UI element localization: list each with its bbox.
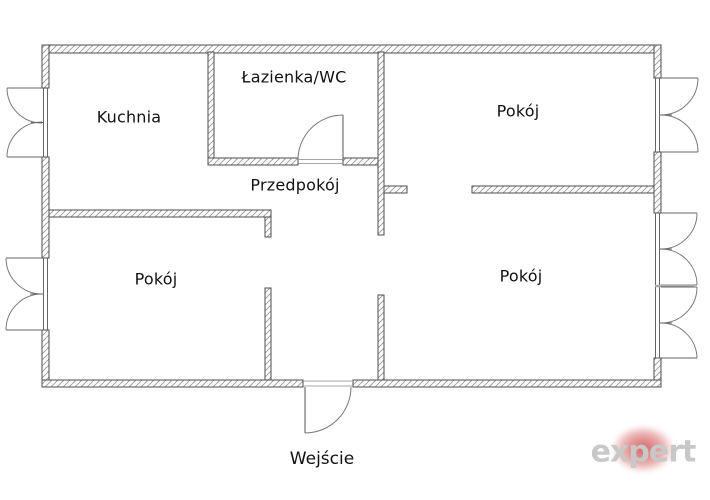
room-label-bathroom: Łazienka/WC <box>242 68 347 87</box>
room-label-room-bottom-right: Pokój <box>500 267 543 286</box>
wall-outer-left-upper <box>42 45 49 88</box>
room-bottom-left-window <box>6 258 48 330</box>
watermark-logo-text: expert <box>591 435 696 470</box>
wall-room-top-right-bottom-stub <box>384 186 407 193</box>
wall-outer-right-middle <box>654 152 661 213</box>
room-label-room-top-right: Pokój <box>497 102 540 121</box>
room-bottom-right-window <box>655 213 697 358</box>
wall-hallway-right-lower <box>378 295 384 380</box>
floor-plan-drawing <box>0 0 710 500</box>
wall-outer-left-middle <box>42 157 49 258</box>
bathroom-door <box>298 115 343 164</box>
wall-outer-top <box>42 45 661 53</box>
wall-room-bottom-left-right <box>265 288 271 380</box>
entrance-label: Wejście <box>290 449 354 469</box>
wall-room-top-right-bottom <box>472 186 654 193</box>
wall-bathroom-bottom-left <box>208 158 298 165</box>
wall-hallway-right-upper <box>378 52 384 235</box>
wall-outer-bottom-right <box>353 380 661 387</box>
floor-plan: Kuchnia Łazienka/WC Pokój Przedpokój Pok… <box>0 0 710 500</box>
entrance-door <box>303 381 353 433</box>
wall-room-bottom-left-right-stub <box>265 217 271 237</box>
wall-outer-left-lower <box>42 330 49 387</box>
room-label-room-bottom-left: Pokój <box>135 270 178 289</box>
wall-outer-bottom-left <box>42 380 303 387</box>
wall-kitchen-divider <box>49 210 271 217</box>
wall-outer-right-upper <box>654 45 661 78</box>
room-top-right-window <box>656 78 699 152</box>
room-label-kitchen: Kuchnia <box>97 108 162 127</box>
walls <box>42 45 661 387</box>
wall-bathroom-left <box>208 52 214 165</box>
kitchen-window <box>7 88 48 157</box>
room-label-hallway: Przedpokój <box>250 176 339 195</box>
